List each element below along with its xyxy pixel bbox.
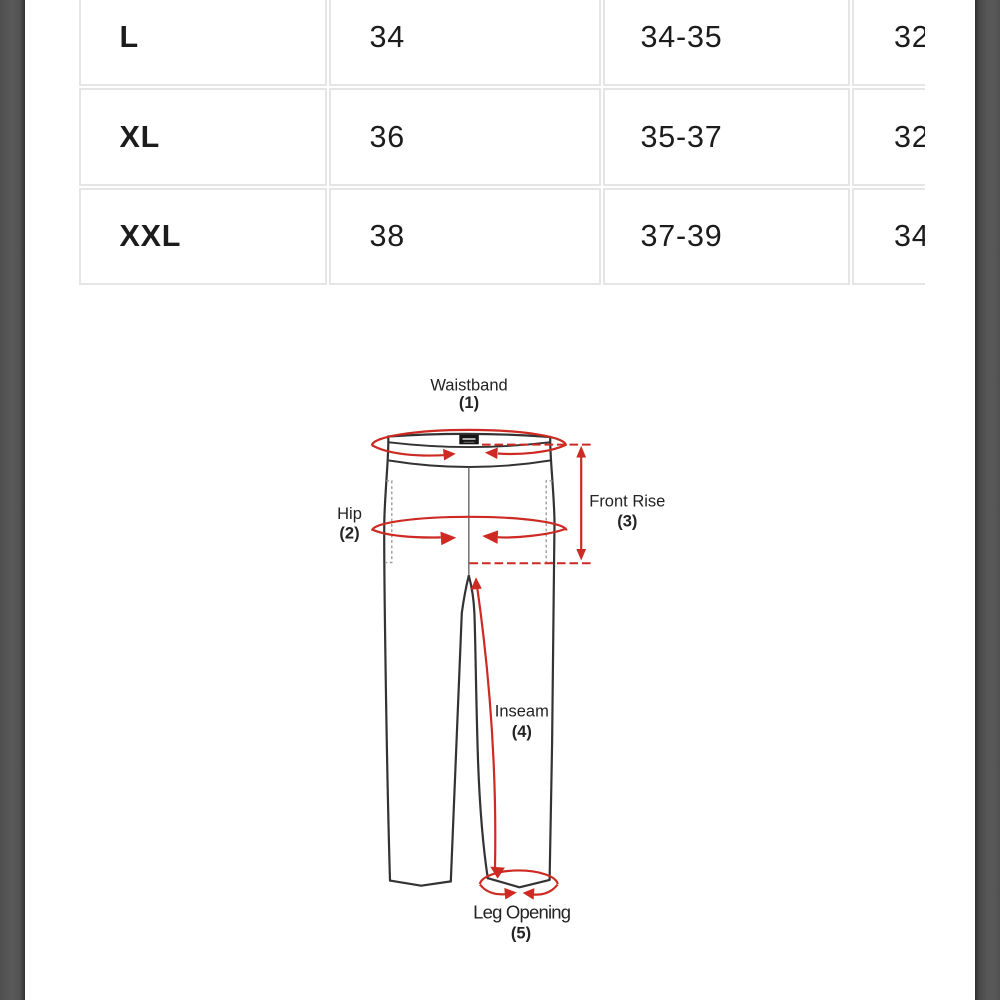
svg-text:(3): (3) bbox=[617, 512, 637, 530]
svg-text:Inseam: Inseam bbox=[495, 703, 549, 721]
svg-text:Front Rise: Front Rise bbox=[589, 493, 665, 511]
svg-text:(4): (4) bbox=[512, 723, 532, 741]
svg-text:Hip: Hip bbox=[337, 505, 362, 523]
svg-text:Leg Opening: Leg Opening bbox=[473, 902, 571, 923]
svg-text:(2): (2) bbox=[339, 525, 359, 543]
svg-text:Waistband: Waistband bbox=[430, 376, 507, 394]
svg-text:(1): (1) bbox=[459, 394, 479, 412]
svg-text:(5): (5) bbox=[511, 924, 531, 942]
